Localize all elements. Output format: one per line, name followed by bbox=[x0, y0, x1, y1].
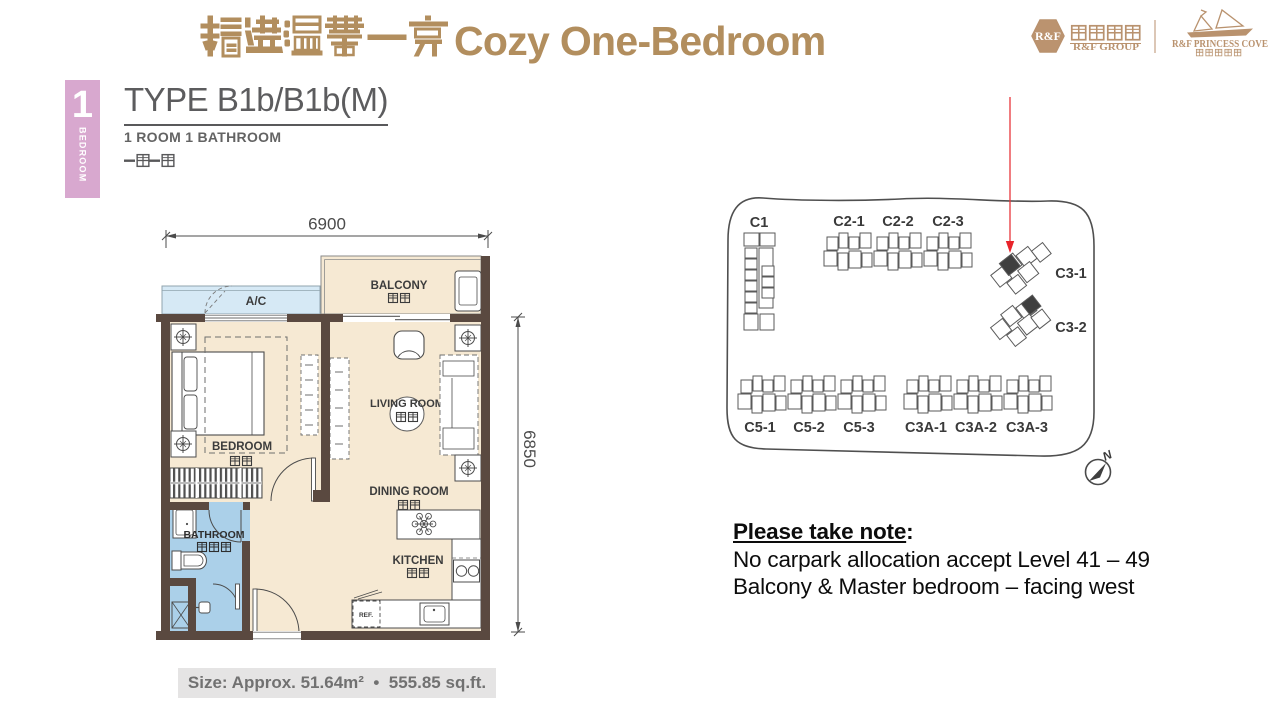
svg-text:C3-2: C3-2 bbox=[1055, 320, 1086, 336]
svg-text:C3A-2: C3A-2 bbox=[955, 420, 997, 436]
svg-text:R&F GROUP: R&F GROUP bbox=[1073, 42, 1140, 52]
svg-text:6900: 6900 bbox=[308, 215, 346, 234]
svg-text:C2-3: C2-3 bbox=[932, 214, 963, 230]
svg-text:BALCONY: BALCONY bbox=[371, 280, 428, 292]
svg-text:R&F: R&F bbox=[1035, 29, 1061, 43]
svg-text:BEDROOM: BEDROOM bbox=[212, 441, 272, 453]
svg-text:REF.: REF. bbox=[359, 612, 373, 619]
svg-text:C5-3: C5-3 bbox=[843, 420, 874, 436]
svg-text:C5-1: C5-1 bbox=[744, 420, 775, 436]
svg-text:C2-2: C2-2 bbox=[882, 214, 913, 230]
svg-text:C2-1: C2-1 bbox=[833, 214, 864, 230]
svg-text:C3A-1: C3A-1 bbox=[905, 420, 947, 436]
svg-text:KITCHEN: KITCHEN bbox=[392, 555, 443, 567]
svg-text:Cozy One-Bedroom: Cozy One-Bedroom bbox=[454, 18, 826, 64]
svg-text:DINING ROOM: DINING ROOM bbox=[369, 486, 448, 498]
svg-text:LIVING ROOM: LIVING ROOM bbox=[370, 398, 444, 410]
svg-text:R&F PRINCESS COVE: R&F PRINCESS COVE bbox=[1172, 38, 1268, 50]
svg-text:C1: C1 bbox=[750, 215, 769, 231]
svg-text:C3A-3: C3A-3 bbox=[1006, 420, 1048, 436]
svg-text:C3-1: C3-1 bbox=[1055, 266, 1086, 282]
svg-text:C5-2: C5-2 bbox=[793, 420, 824, 436]
svg-text:A/C: A/C bbox=[246, 294, 267, 308]
svg-text:6850: 6850 bbox=[520, 430, 539, 468]
svg-text:BATHROOM: BATHROOM bbox=[183, 529, 244, 541]
